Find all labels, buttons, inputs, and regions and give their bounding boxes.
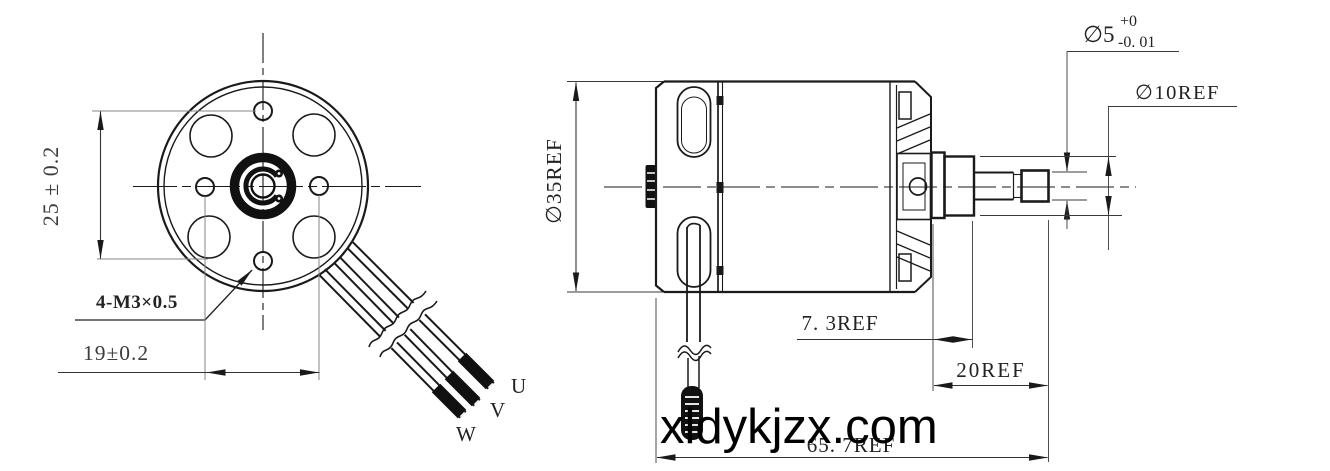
- dim-20-label: 20REF: [956, 358, 1026, 382]
- thread-callout-label: 4-M3×0.5: [96, 292, 178, 313]
- front-view: 25 ± 0.2 4-M3×0.5 19±0.2 U V W: [38, 33, 526, 446]
- shaft-assembly: [932, 153, 1049, 219]
- dim-dia5: ∅5 +0 -0. 01: [1052, 13, 1179, 229]
- side-view: ∅35REF: [542, 13, 1237, 463]
- wire-label-u: U: [511, 374, 526, 398]
- watermark-text: xldykjzx.com: [660, 400, 938, 454]
- dim-19: 19±0.2: [58, 195, 320, 380]
- dim-dia5-label: ∅5: [1083, 22, 1115, 47]
- wire-label-v: V: [490, 398, 505, 422]
- rear-shaft-stub: [646, 165, 657, 208]
- dim-dia5-tol-lower: -0. 01: [1118, 34, 1155, 51]
- motor-technical-drawing: 25 ± 0.2 4-M3×0.5 19±0.2 U V W: [0, 0, 1330, 471]
- dim-dia35-label: ∅35REF: [542, 138, 566, 224]
- dim-20: 20REF: [934, 220, 1049, 462]
- dim-25-label: 25 ± 0.2: [38, 146, 63, 227]
- dim-7-3: 7. 3REF: [797, 221, 973, 391]
- dim-dia10: ∅10REF: [980, 82, 1237, 250]
- dim-7-3-label: 7. 3REF: [801, 311, 878, 335]
- dim-19-label: 19±0.2: [83, 341, 149, 365]
- dim-dia10-label: ∅10REF: [1135, 82, 1220, 104]
- front-lead-wires: [322, 245, 491, 415]
- drawing-canvas: 25 ± 0.2 4-M3×0.5 19±0.2 U V W: [0, 0, 1330, 471]
- wire-label-w: W: [456, 422, 476, 446]
- dim-dia5-tol-upper: +0: [1120, 13, 1137, 30]
- dim-25: 25 ± 0.2: [38, 111, 256, 259]
